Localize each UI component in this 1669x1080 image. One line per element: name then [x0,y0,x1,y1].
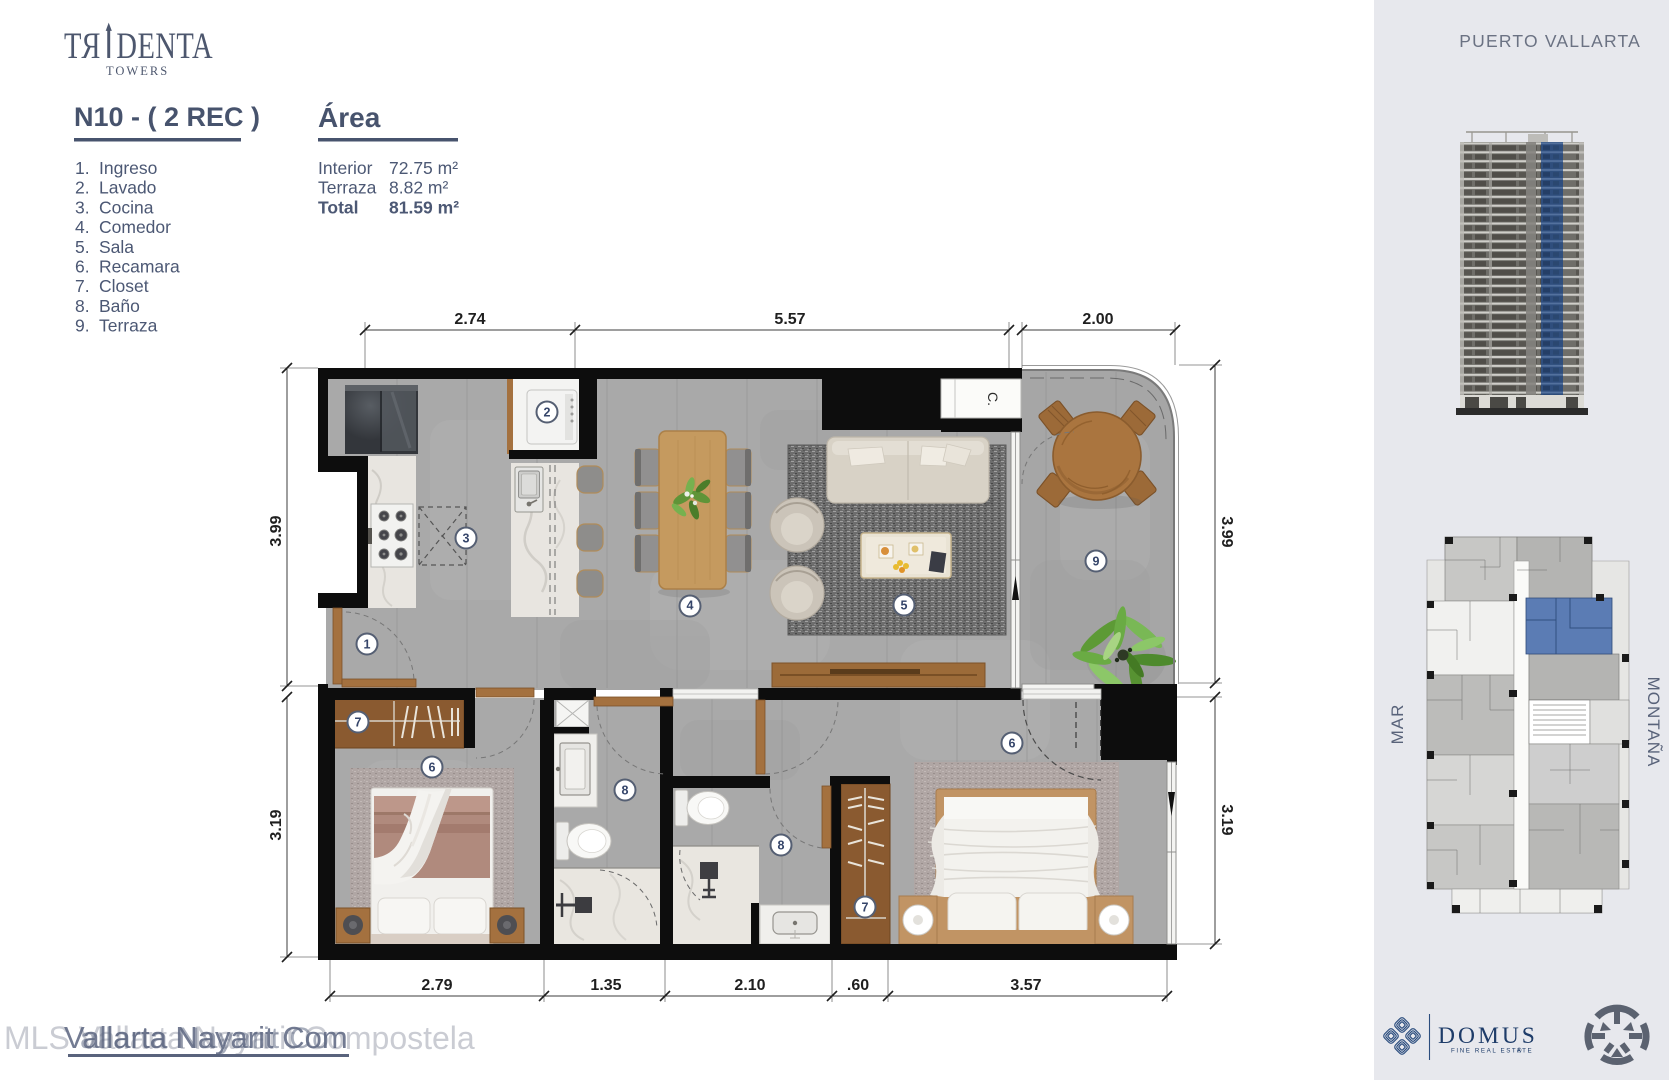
svg-text:Lavado: Lavado [99,178,156,198]
svg-text:7: 7 [355,716,362,730]
svg-text:3.99: 3.99 [1218,516,1235,547]
svg-text:8.: 8. [75,296,90,316]
svg-text:Total: Total [318,197,359,217]
svg-text:Sala: Sala [99,237,134,257]
svg-text:Área: Área [318,102,381,133]
svg-text:3.99: 3.99 [268,515,285,546]
svg-text:Terraza: Terraza [99,316,158,336]
svg-text:8: 8 [778,839,785,853]
svg-text:3.57: 3.57 [1010,977,1041,994]
svg-text:2.: 2. [75,178,90,198]
svg-text:2.74: 2.74 [454,311,485,328]
svg-text:6: 6 [429,761,436,775]
svg-text:C.: C. [985,392,1001,406]
svg-text:7.: 7. [75,276,90,296]
svg-text:.60: .60 [847,977,869,994]
svg-text:7: 7 [862,901,869,915]
svg-text:TOWERS: TOWERS [106,64,169,78]
svg-text:5.: 5. [75,237,90,257]
svg-text:4: 4 [687,599,694,613]
svg-text:2.00: 2.00 [1082,311,1113,328]
svg-text:1.35: 1.35 [590,977,621,994]
svg-text:2.10: 2.10 [734,977,765,994]
svg-text:9: 9 [1093,555,1100,569]
svg-text:2.79: 2.79 [421,977,452,994]
svg-text:Interior: Interior [318,158,373,178]
svg-text:2: 2 [544,406,551,420]
svg-text:DENTA: DENTA [116,27,213,67]
svg-text:3.19: 3.19 [268,809,285,840]
svg-text:Ingreso: Ingreso [99,158,157,178]
svg-text:Terraza: Terraza [318,178,377,198]
svg-text:1: 1 [364,638,371,652]
svg-text:Recamara: Recamara [99,257,180,277]
svg-text:6: 6 [1009,737,1016,751]
svg-text:4.: 4. [75,217,90,237]
svg-text:PUERTO VALLARTA: PUERTO VALLARTA [1459,31,1641,51]
svg-text:3.19: 3.19 [1218,804,1235,835]
svg-text:3: 3 [463,532,470,546]
svg-text:8: 8 [622,784,629,798]
svg-text:5: 5 [901,599,908,613]
svg-text:Baño: Baño [99,296,140,316]
svg-text:Comedor: Comedor [99,217,171,237]
svg-text:MONTAÑA: MONTAÑA [1644,677,1663,768]
svg-text:TЯ: TЯ [64,27,100,67]
svg-text:allarta Nayarit Co: allarta Nayarit Co [80,1022,330,1055]
svg-text:®: ® [1517,1048,1522,1055]
svg-text:1.: 1. [75,158,90,178]
svg-text:81.59 m²: 81.59 m² [389,197,459,217]
svg-text:Closet: Closet [99,276,149,296]
svg-text:6.: 6. [75,257,90,277]
svg-text:DOMUS: DOMUS [1438,1023,1538,1049]
svg-text:3.: 3. [75,197,90,217]
svg-text:Cocina: Cocina [99,197,154,217]
svg-text:MAR: MAR [1388,704,1407,745]
svg-text:8.82 m²: 8.82 m² [389,178,448,198]
svg-text:72.75 m²: 72.75 m² [389,158,458,178]
svg-text:9.: 9. [75,316,90,336]
svg-text:5.57: 5.57 [774,311,805,328]
svg-text:N10 - ( 2 REC ): N10 - ( 2 REC ) [74,102,260,132]
